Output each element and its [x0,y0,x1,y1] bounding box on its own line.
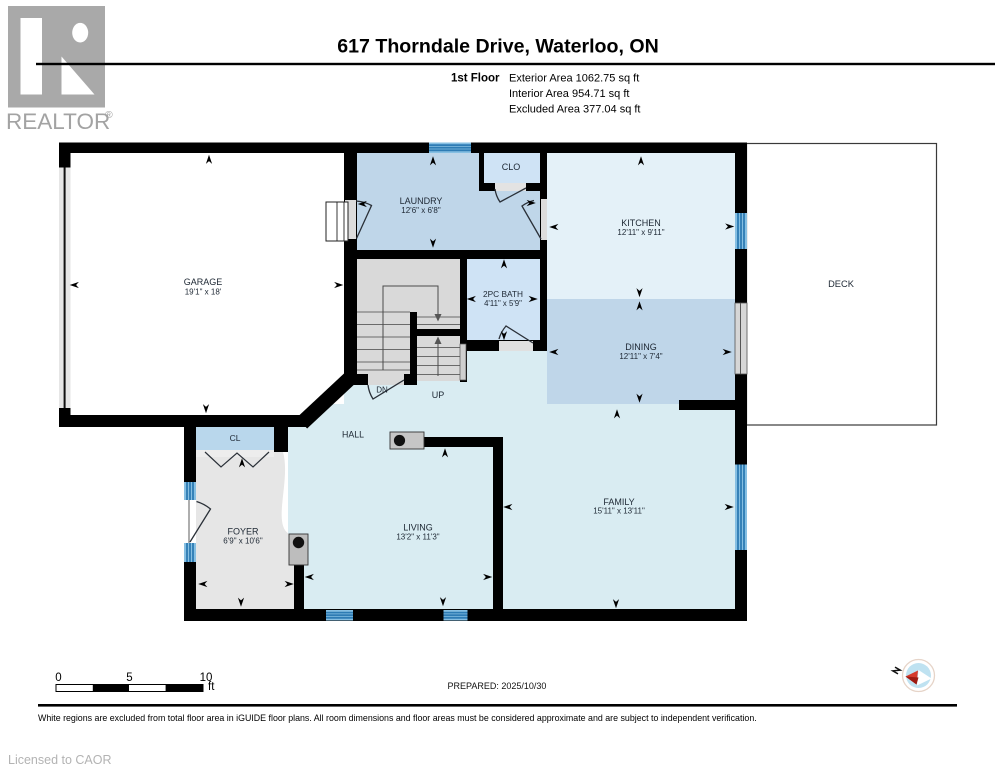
svg-text:2PC BATH: 2PC BATH [483,289,523,299]
svg-text:GARAGE: GARAGE [184,277,223,287]
svg-text:12'11" x 7'4": 12'11" x 7'4" [619,352,662,361]
svg-text:5: 5 [126,672,132,684]
svg-text:19'1" x 18': 19'1" x 18' [185,288,222,297]
svg-text:CLO: CLO [502,162,521,172]
svg-text:DN: DN [376,386,388,395]
svg-text:HALL: HALL [342,430,364,440]
svg-text:KITCHEN: KITCHEN [621,218,661,228]
svg-text:ft: ft [208,681,215,693]
svg-text:DECK: DECK [828,279,855,289]
svg-text:LIVING: LIVING [403,523,433,533]
svg-text:Excluded Area 377.04 sq ft: Excluded Area 377.04 sq ft [509,104,640,116]
svg-text:REALTOR: REALTOR [6,109,110,134]
svg-text:CL: CL [230,433,241,443]
svg-text:617 Thorndale Drive, Waterloo,: 617 Thorndale Drive, Waterloo, ON [337,36,659,58]
svg-text:Licensed to CAOR: Licensed to CAOR [8,753,112,767]
svg-text:UP: UP [432,390,445,400]
svg-text:12'11" x 9'11": 12'11" x 9'11" [617,228,664,237]
svg-text:Interior Area 954.71 sq ft: Interior Area 954.71 sq ft [509,88,629,100]
svg-text:®: ® [105,109,113,121]
svg-text:DINING: DINING [625,342,657,352]
svg-text:6'9" x 10'6": 6'9" x 10'6" [223,537,263,546]
svg-text:Exterior Area 1062.75 sq ft: Exterior Area 1062.75 sq ft [509,73,639,85]
svg-text:LAUNDRY: LAUNDRY [400,196,443,206]
svg-text:PREPARED: 2025/10/30: PREPARED: 2025/10/30 [448,681,547,691]
svg-text:1st Floor: 1st Floor [451,73,500,85]
svg-text:4'11" x 5'9": 4'11" x 5'9" [484,299,522,308]
svg-text:13'2" x 11'3": 13'2" x 11'3" [396,533,439,542]
svg-text:FOYER: FOYER [227,527,259,537]
svg-text:FAMILY: FAMILY [603,497,634,507]
svg-text:White regions are excluded fro: White regions are excluded from total fl… [38,713,757,723]
svg-text:0: 0 [55,672,61,684]
svg-text:12'6" x 6'8": 12'6" x 6'8" [401,206,441,215]
svg-text:15'11" x 13'11": 15'11" x 13'11" [593,507,645,516]
